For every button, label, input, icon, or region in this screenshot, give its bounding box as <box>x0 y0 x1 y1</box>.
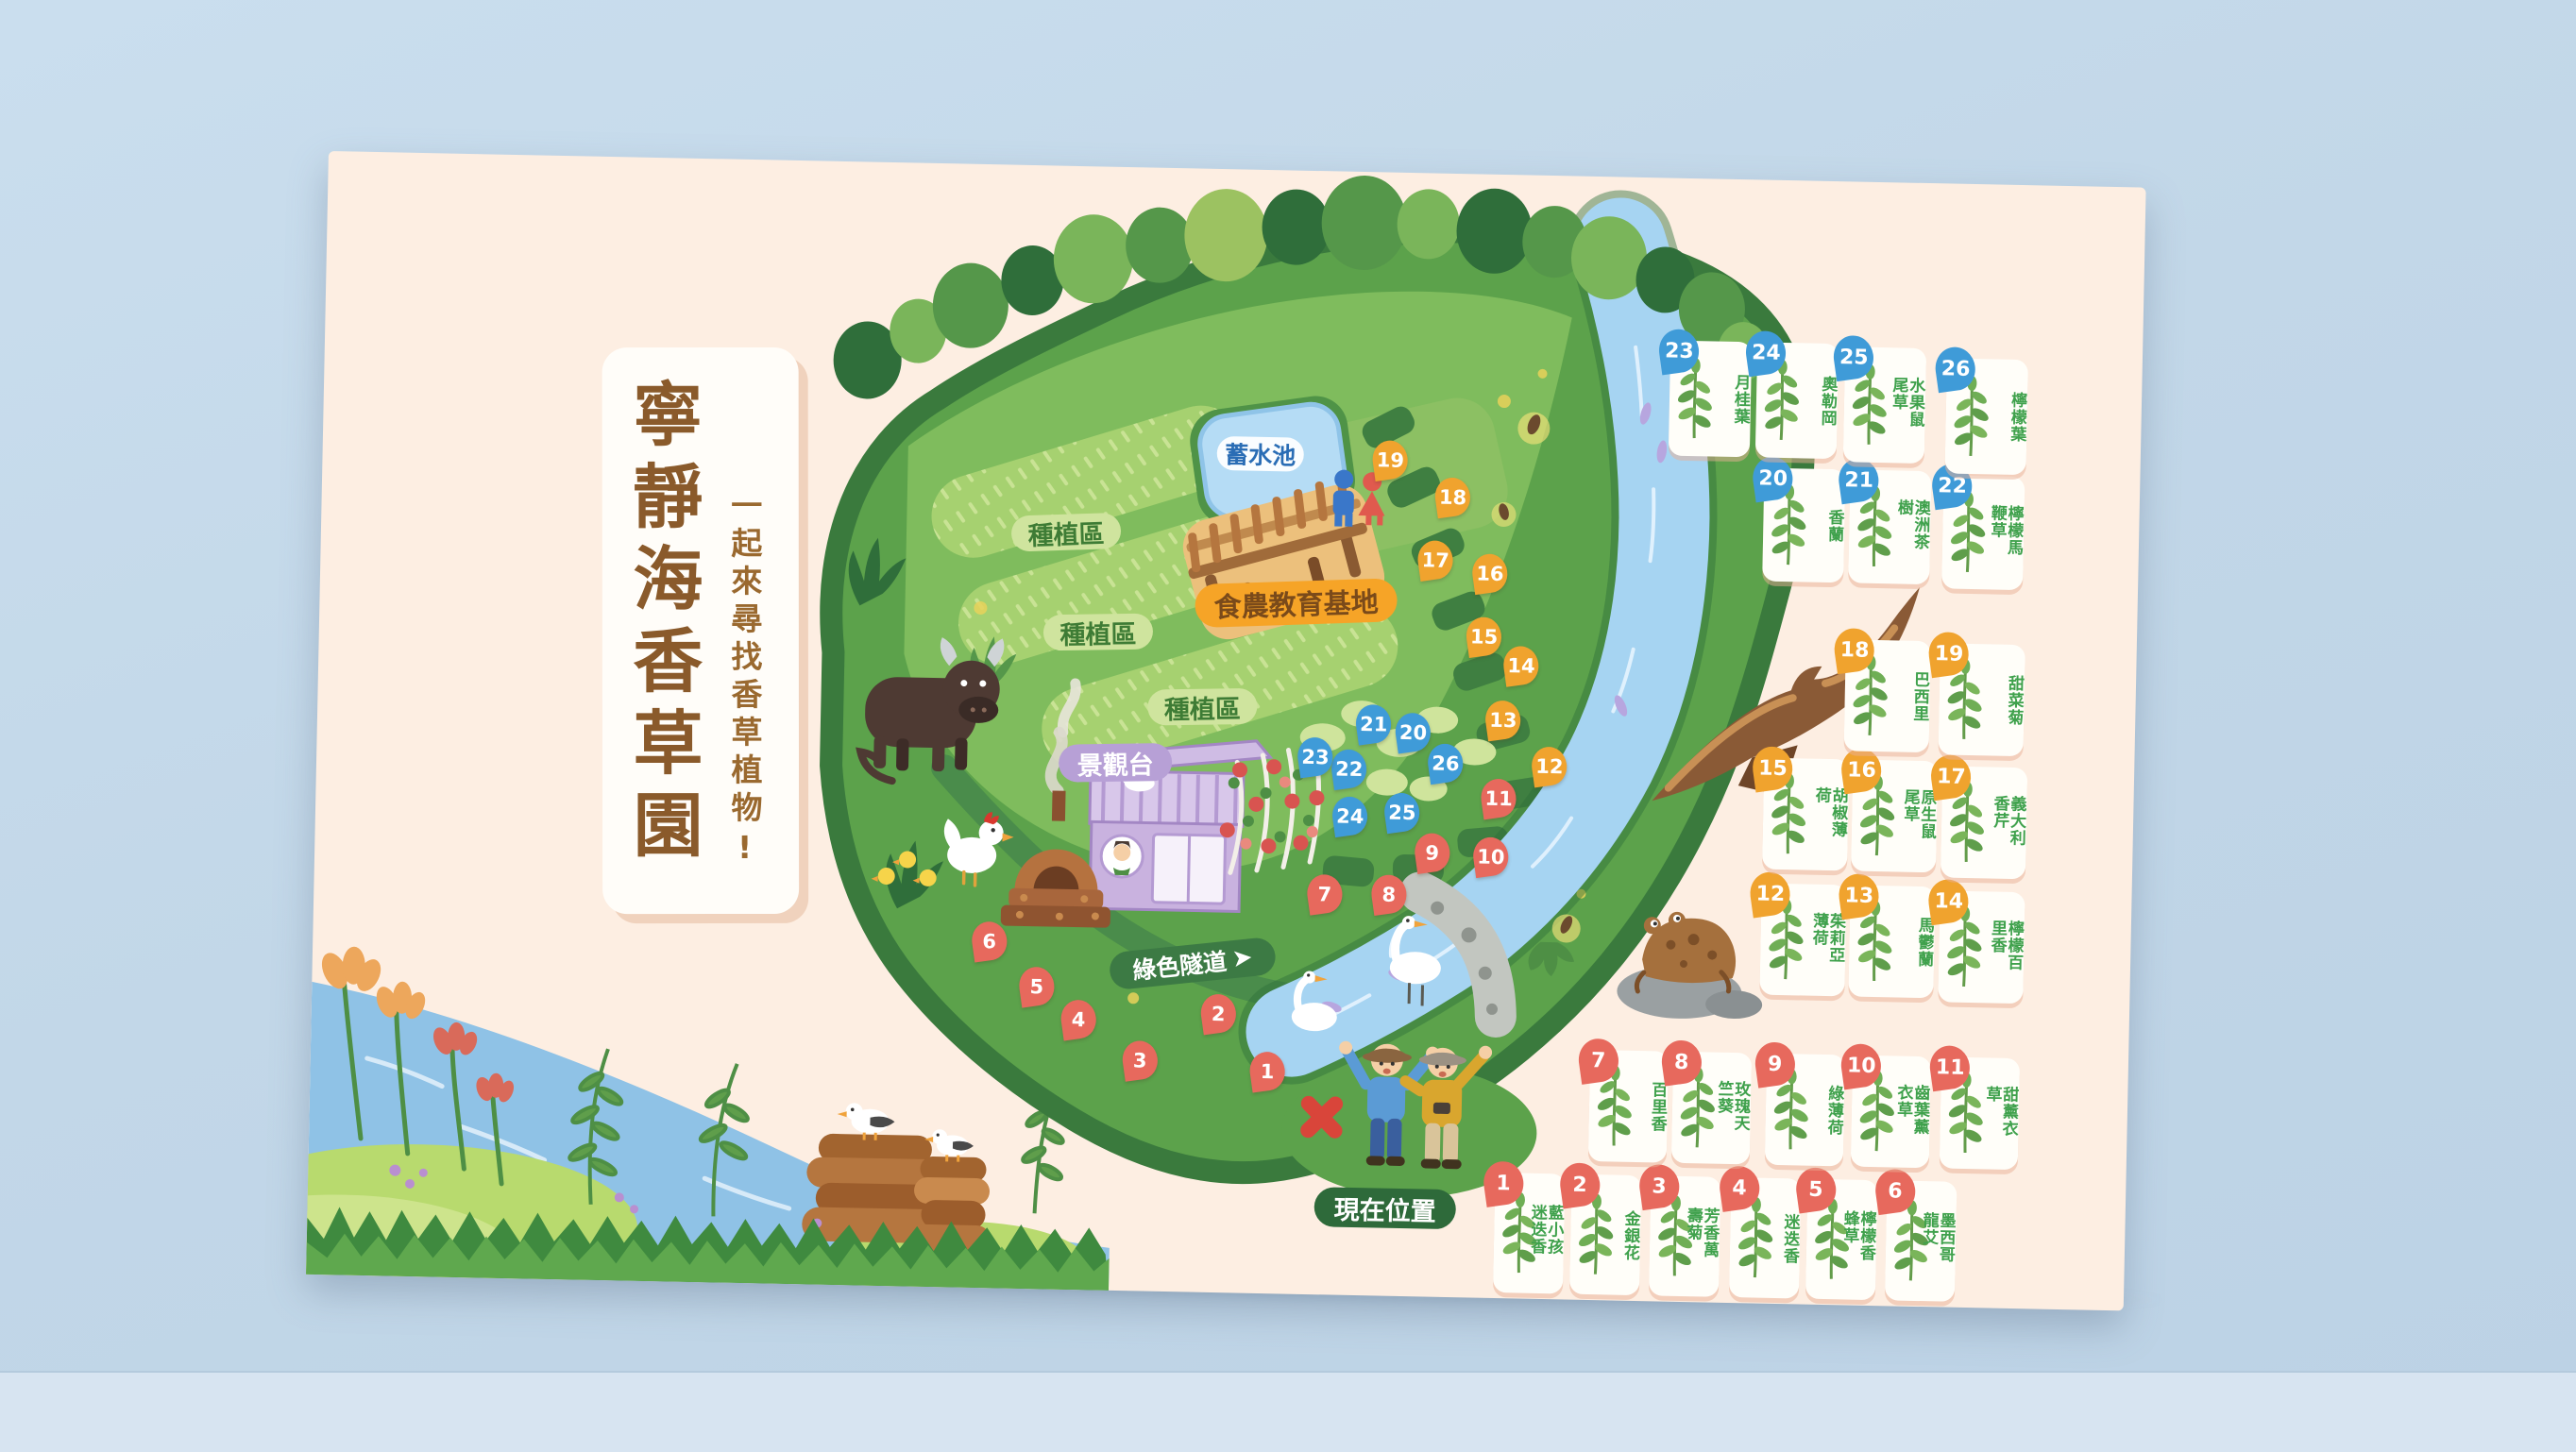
legend-number: 20 <box>1758 466 1788 491</box>
legend-card-2[interactable]: 2 金銀花 <box>1569 1174 1642 1295</box>
herb-name: 檸檬香蜂草 <box>1839 1209 1874 1270</box>
legend-card-3[interactable]: 3 芳香萬壽菊 <box>1649 1175 1721 1296</box>
herb-name: 澳洲茶樹 <box>1893 498 1928 556</box>
herb-name: 檸檬百里香 <box>1987 920 2022 976</box>
legend-number: 26 <box>1940 357 1970 381</box>
marker-number: 21 <box>1360 713 1388 736</box>
marker-number: 12 <box>1535 754 1564 778</box>
marker-number: 4 <box>1072 1007 1086 1030</box>
legend-number: 7 <box>1591 1049 1606 1072</box>
legend-card-18[interactable]: 18 巴西里 <box>1844 639 1931 752</box>
herb-name: 胡椒薄荷 <box>1811 786 1846 843</box>
marker-number: 3 <box>1133 1049 1147 1072</box>
marker-number: 14 <box>1507 654 1535 678</box>
legend-card-5[interactable]: 5 檸檬香蜂草 <box>1805 1179 1878 1300</box>
legend-number: 10 <box>1846 1054 1875 1078</box>
legend-card-22[interactable]: 22 檸檬馬鞭草 <box>1941 475 2025 590</box>
legend-number: 8 <box>1674 1050 1689 1073</box>
legend-number: 24 <box>1751 341 1780 365</box>
marker-number: 16 <box>1476 562 1504 585</box>
legend-number: 14 <box>1934 889 1963 914</box>
legend-card-15[interactable]: 15 胡椒薄荷 <box>1762 758 1849 871</box>
legend-card-12[interactable]: 12 茱莉亞薄荷 <box>1759 884 1846 997</box>
rock-stacks <box>802 1102 993 1254</box>
marker-number: 1 <box>1261 1060 1275 1083</box>
legend-card-8[interactable]: 8 玫瑰天竺葵 <box>1671 1052 1752 1165</box>
label-planting-area-3: 種植區 <box>1147 688 1258 726</box>
legend-card-19[interactable]: 19 甜菜菊 <box>1939 643 2025 756</box>
legend-number: 3 <box>1652 1174 1667 1198</box>
poster-title: 寧靜海香草園 <box>627 378 697 887</box>
legend-card-11[interactable]: 11 甜薰衣草 <box>1940 1056 2020 1170</box>
label-current-location: 現在位置 <box>1313 1187 1456 1229</box>
legend-number: 12 <box>1755 882 1785 906</box>
legend-card-16[interactable]: 16 原生鼠尾草 <box>1851 760 1938 873</box>
herb-name: 奧勒岡 <box>1818 376 1836 427</box>
herb-name: 茱莉亞薄荷 <box>1808 912 1843 969</box>
marker-number: 9 <box>1425 841 1439 864</box>
legend-number: 17 <box>1936 765 1965 789</box>
legend-card-24[interactable]: 24 奧勒岡 <box>1755 342 1839 459</box>
floor <box>0 1371 2576 1452</box>
herb-name: 齒葉薰衣草 <box>1893 1084 1928 1140</box>
marker-number: 18 <box>1439 485 1467 509</box>
legend-number: 5 <box>1808 1177 1823 1201</box>
marker-number: 2 <box>1212 1002 1226 1024</box>
herb-name: 義大利香芹 <box>1990 795 2025 852</box>
legend-card-14[interactable]: 14 檸檬百里香 <box>1938 890 2025 1004</box>
marker-number: 10 <box>1477 845 1505 869</box>
legend-number: 23 <box>1664 339 1693 363</box>
herb-name: 原生鼠尾草 <box>1900 788 1935 845</box>
legend-card-4[interactable]: 4 迷迭香 <box>1729 1177 1802 1298</box>
legend-card-10[interactable]: 10 齒葉薰衣草 <box>1851 1055 1931 1169</box>
marker-number: 17 <box>1421 549 1449 572</box>
herb-name: 香蘭 <box>1824 509 1842 543</box>
marker-number: 7 <box>1317 883 1331 905</box>
marker-number: 19 <box>1376 448 1404 472</box>
legend-card-6[interactable]: 6 墨西哥龍艾 <box>1885 1180 1957 1301</box>
herb-name: 芳香萬壽菊 <box>1683 1207 1718 1267</box>
title-card: 寧靜海香草園 一起來尋找香草植物! <box>602 347 800 914</box>
marker-number: 15 <box>1470 625 1499 649</box>
legend-number: 9 <box>1768 1052 1783 1075</box>
poster-subtitle: 一起來尋找香草植物! <box>721 489 767 895</box>
legend-number: 22 <box>1938 474 1967 498</box>
legend-card-23[interactable]: 23 月桂葉 <box>1669 341 1752 458</box>
herb-name: 迷迭香 <box>1780 1213 1798 1264</box>
legend-card-21[interactable]: 21 澳洲茶樹 <box>1848 469 1931 584</box>
legend-card-17[interactable]: 17 義大利香芹 <box>1940 766 2027 879</box>
marker-number: 13 <box>1489 708 1517 732</box>
herb-name: 甜菜菊 <box>2004 675 2022 726</box>
marker-number: 24 <box>1336 804 1364 828</box>
herb-name: 百里香 <box>1648 1081 1666 1132</box>
marker-number: 25 <box>1388 801 1416 824</box>
legend-number: 2 <box>1572 1173 1587 1196</box>
legend-card-25[interactable]: 25 水果鼠尾草 <box>1843 346 1926 464</box>
legend-number: 6 <box>1888 1179 1903 1203</box>
herb-name: 巴西里 <box>1909 671 1927 722</box>
herb-name: 甜薰衣草 <box>1982 1086 2017 1142</box>
marker-number: 22 <box>1335 757 1364 781</box>
herb-name: 金銀花 <box>1620 1209 1638 1260</box>
label-planting-area-1: 種植區 <box>1010 513 1121 552</box>
label-reservoir: 蓄水池 <box>1216 436 1304 472</box>
marker-number: 20 <box>1399 720 1428 744</box>
legend-number: 1 <box>1496 1172 1511 1195</box>
legend-number: 18 <box>1839 638 1869 663</box>
scene: { "poster": { "title": "寧靜海香草園", "subtit… <box>0 0 2576 1450</box>
herb-name: 綠薄荷 <box>1824 1085 1842 1136</box>
legend-card-1[interactable]: 1 藍小孩迷迭香 <box>1493 1173 1566 1293</box>
legend-number: 13 <box>1844 884 1873 908</box>
herb-name: 墨西哥龍艾 <box>1919 1211 1954 1272</box>
label-planting-area-2: 種植區 <box>1043 614 1154 651</box>
herb-name: 檸檬馬鞭草 <box>1987 504 2022 562</box>
marker-number: 6 <box>982 930 996 953</box>
herb-garden-poster: 寧靜海香草園 一起來尋找香草植物! 蓄水池 種植區 種植區 種植區 食農教育基地… <box>306 151 2145 1310</box>
green-tunnel-text: 綠色隧道 <box>1131 943 1229 987</box>
legend-number: 25 <box>1839 346 1868 370</box>
herb-name: 馬鬱蘭 <box>1914 917 1932 968</box>
legend-number: 16 <box>1847 758 1876 783</box>
legend-card-7[interactable]: 7 百里香 <box>1588 1050 1669 1163</box>
herb-name: 水果鼠尾草 <box>1889 377 1924 435</box>
legend-number: 21 <box>1844 468 1873 493</box>
legend-card-13[interactable]: 13 馬鬱蘭 <box>1848 886 1935 999</box>
herb-name: 檸檬葉 <box>2007 392 2025 443</box>
legend-number: 19 <box>1934 642 1963 667</box>
label-viewing-deck: 景觀台 <box>1059 743 1173 783</box>
legend-card-20[interactable]: 20 香蘭 <box>1762 468 1845 583</box>
legend-number: 11 <box>1935 1055 1964 1080</box>
herb-name: 玫瑰天竺葵 <box>1714 1080 1749 1137</box>
arrow-right-icon: ➤ <box>1230 945 1253 971</box>
marker-number: 23 <box>1301 745 1330 768</box>
legend-card-9[interactable]: 9 綠薄荷 <box>1765 1054 1845 1167</box>
legend-number: 4 <box>1732 1176 1747 1200</box>
legend-card-26[interactable]: 26 檸檬葉 <box>1944 358 2027 475</box>
label-education-base: 食農教育基地 <box>1195 578 1398 628</box>
marker-number: 5 <box>1029 975 1043 998</box>
marker-number: 8 <box>1381 883 1396 905</box>
marker-number: 26 <box>1432 751 1460 775</box>
marker-number: 11 <box>1484 786 1513 810</box>
legend-number: 15 <box>1758 756 1788 781</box>
herb-name: 藍小孩迷迭香 <box>1527 1203 1562 1263</box>
herb-name: 月桂葉 <box>1731 374 1749 425</box>
